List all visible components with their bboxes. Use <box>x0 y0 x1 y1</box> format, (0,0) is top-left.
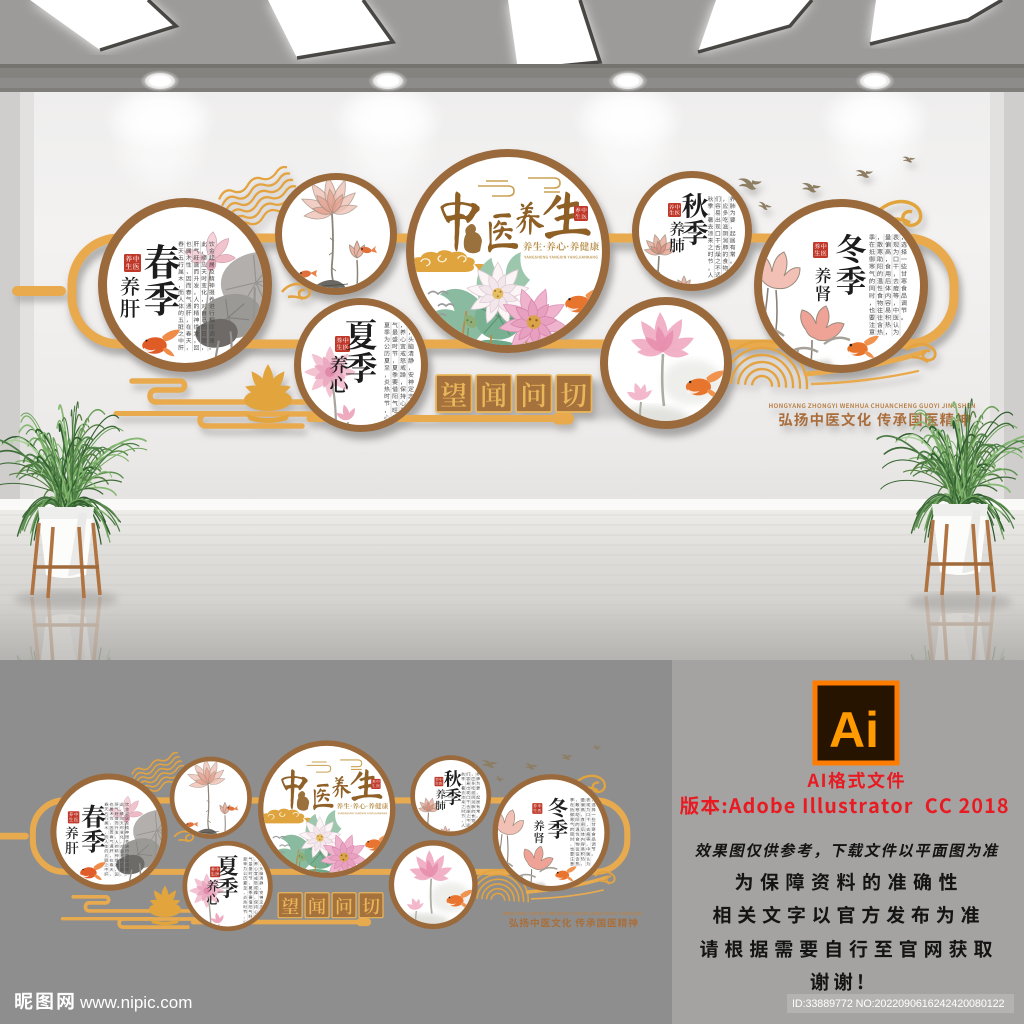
svg-text:ID:33889772 NO:202209061624242: ID:33889772 NO:2022090616242420080122 <box>792 998 1005 1010</box>
svg-text:www.nipic.com: www.nipic.com <box>79 993 192 1012</box>
svg-text:Ai: Ai <box>829 702 879 758</box>
